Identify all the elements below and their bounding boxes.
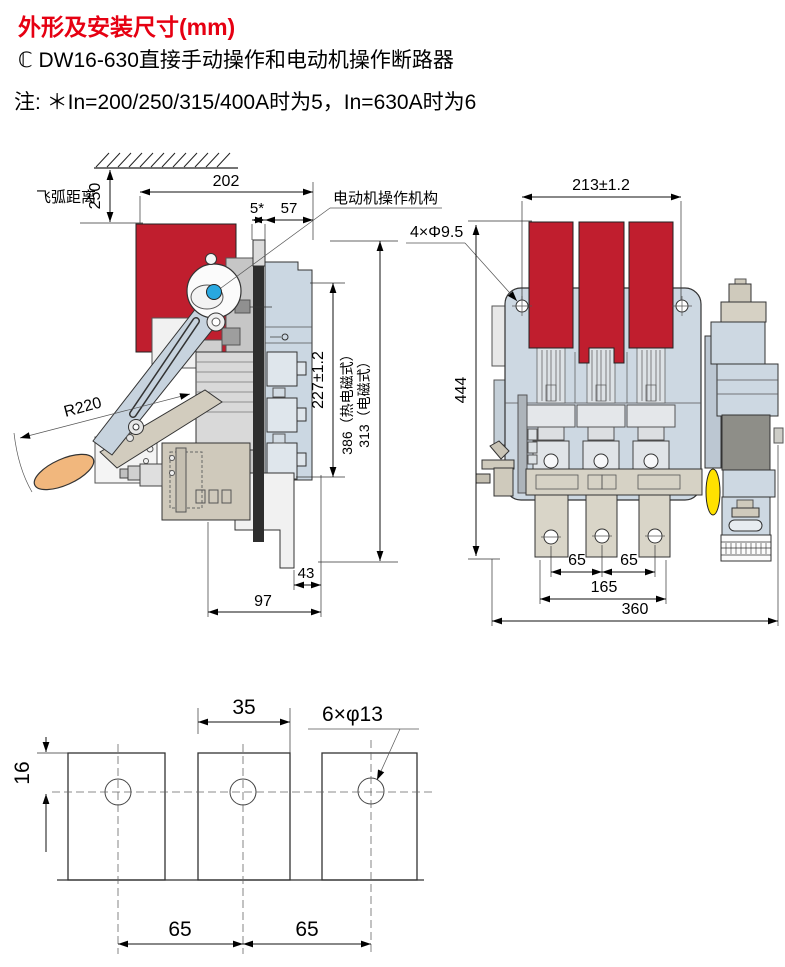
dim-360-label: 360 xyxy=(622,601,649,618)
bottom-rail xyxy=(526,469,702,495)
dim-213-label: 213±1.2 xyxy=(572,177,630,194)
dim-65-bottom-right-label: 65 xyxy=(295,918,318,941)
right-view: 213±1.2 4×Φ9.5 444 65 65 165 360 xyxy=(406,177,783,626)
motor-knob xyxy=(207,285,222,300)
busbar-pad-1 xyxy=(68,753,165,880)
dim-313-label: 313（电磁式） xyxy=(356,354,372,447)
catalog-page: 外形及安装尺寸(mm) ℂ DW16-630直接手动操作和电动机操作断路器 注:… xyxy=(0,0,785,967)
arc-chute-pole1 xyxy=(529,222,573,348)
dim-5-label: 5* xyxy=(250,200,264,217)
dim-202-label: 202 xyxy=(213,173,240,190)
left-view: 250 飞弧距离 202 5* 57 电动机操作机构 R220 227±1.2 xyxy=(14,153,442,617)
dim-386-label: 386（热电磁式） xyxy=(339,347,355,454)
terminal-strip xyxy=(721,535,771,561)
arc-distance-label: 飞弧距离 xyxy=(36,189,96,206)
dimension-drawings: 250 飞弧距离 202 5* 57 电动机操作机构 R220 227±1.2 xyxy=(0,0,785,967)
pole-blocks xyxy=(527,405,675,469)
terminal-studs xyxy=(535,495,670,557)
dim-65-bottom-left-label: 65 xyxy=(168,918,191,941)
dim-165-label: 165 xyxy=(591,579,618,596)
motor-operator xyxy=(705,279,783,561)
yellow-indicator xyxy=(706,469,720,515)
dim-43-label: 43 xyxy=(298,565,315,582)
dim-65-left-label: 65 xyxy=(568,552,586,569)
dim-444-label: 444 xyxy=(453,377,470,404)
arc-chute-pole3 xyxy=(629,222,673,348)
page-title: 外形及安装尺寸(mm) xyxy=(18,8,235,42)
bottom-view: 35 6×φ13 16 65 65 xyxy=(11,696,434,954)
rear-terminals xyxy=(267,352,306,479)
note-text: 注: ＊In=200/250/315/400A时为5，In=630A时为6 xyxy=(14,86,476,116)
dim-16-label: 16 xyxy=(11,761,34,784)
hole-spec-label: 4×Φ9.5 xyxy=(410,224,463,241)
contact-fingers xyxy=(537,348,665,403)
dim-227-label: 227±1.2 xyxy=(310,351,327,409)
dim-65-right-label: 65 xyxy=(620,552,638,569)
base-block xyxy=(162,443,250,520)
motor-mechanism-label: 电动机操作机构 xyxy=(333,190,438,207)
ground-hatch-icon xyxy=(94,153,238,168)
product-subtitle: ℂ DW16-630直接手动操作和电动机操作断路器 xyxy=(18,44,454,74)
dim-35-label: 35 xyxy=(232,696,255,719)
mounting-bar xyxy=(253,266,264,542)
handle-grip xyxy=(29,447,98,497)
busbar-pad-2 xyxy=(198,753,290,880)
hole-spec-label-bottom: 6×φ13 xyxy=(322,703,383,726)
operator-motor-box xyxy=(722,415,770,470)
arc-chute-pole2 xyxy=(579,222,624,363)
dim-r220-label: R220 xyxy=(62,394,103,420)
dim-97-label: 97 xyxy=(254,593,272,610)
dim-57-label: 57 xyxy=(281,200,298,217)
busbar-pad-3 xyxy=(322,753,417,880)
